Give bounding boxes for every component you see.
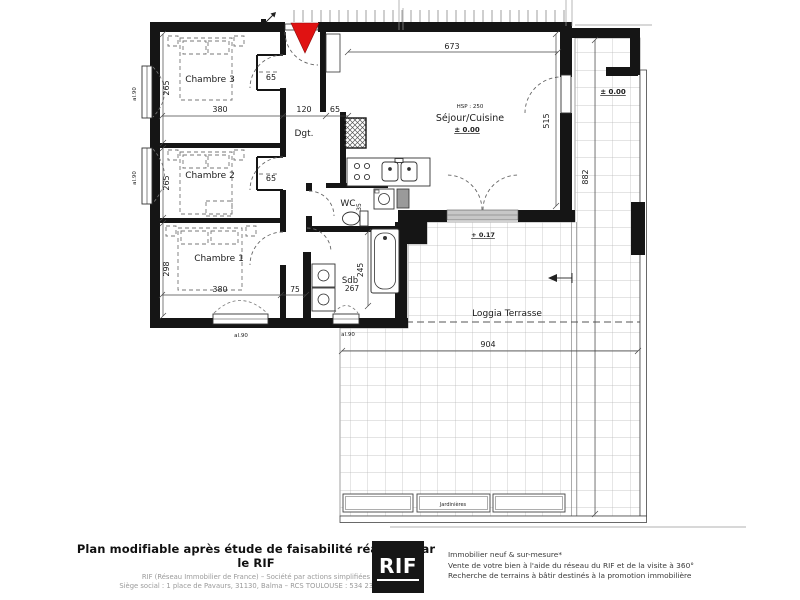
- footer: Plan modifiable après étude de faisabili…: [0, 538, 800, 600]
- room-label-chambre3: Chambre 3: [185, 75, 235, 85]
- dim-entry-width: 120: [296, 105, 311, 114]
- footer-services-block: Immobilier neuf & sur-mesure* Vente de v…: [448, 550, 778, 582]
- toilet-bowl: [343, 212, 360, 225]
- footer-service-line: Recherche de terrains à bâtir destinés à…: [448, 571, 778, 582]
- duct-shaft: [344, 118, 366, 148]
- dim-sdb-depth: 245: [356, 263, 365, 278]
- dim-sejour-width: 673: [444, 42, 459, 51]
- planter-label: Jardinières: [439, 501, 467, 508]
- dim-hall-width: 75: [290, 285, 300, 294]
- toilet-tank: [360, 211, 368, 226]
- footer-service-line: Vente de votre bien à l'aide du réseau d…: [448, 561, 778, 572]
- dim-wc-depth: 35: [356, 203, 363, 211]
- rif-logo-text: RIF: [377, 554, 419, 581]
- room-label-dgt: Dgt.: [294, 129, 313, 139]
- level-loggia: + 0.17: [471, 231, 495, 239]
- room-label-loggia: Loggia Terrasse: [472, 309, 542, 319]
- ruler-ticks: [294, 10, 564, 22]
- level-terrace: ± 0.00: [600, 88, 626, 96]
- floor-plan-canvas: Chambre 3 Chambre 2 Chambre 1 Dgt. WC Sd…: [0, 0, 800, 540]
- room-label-sejour: Séjour/Cuisine: [436, 113, 504, 124]
- room-label-wc: WC: [340, 199, 355, 209]
- terrace-railing-right: [640, 70, 647, 516]
- dim-entry-closet: 65: [330, 105, 340, 114]
- dim-ch1-depth: 298: [162, 261, 171, 276]
- washing-machine: [374, 189, 394, 209]
- rif-logo: RIF: [372, 541, 424, 593]
- washbasin-2: [312, 288, 335, 311]
- dim-ch2-depth: 265: [162, 175, 171, 190]
- entrance-marker: [291, 23, 319, 53]
- dim-ch3-width: 380: [212, 105, 227, 114]
- dim-ch2-closet: 65: [266, 174, 276, 183]
- water-heater: [397, 189, 409, 208]
- washbasin-1: [312, 264, 335, 287]
- kitchen-counter: [347, 158, 430, 186]
- room-label-chambre1: Chambre 1: [194, 254, 244, 264]
- footer-service-line: Immobilier neuf & sur-mesure*: [448, 550, 778, 561]
- level-sejour: ± 0.00: [454, 126, 480, 134]
- dim-sejour-depth: 515: [542, 113, 551, 128]
- dim-ch1-width: 380: [212, 285, 227, 294]
- dim-ch3-closet: 65: [266, 73, 276, 82]
- room-label-chambre2: Chambre 2: [185, 171, 235, 181]
- terrace-railing-bottom: [340, 516, 647, 523]
- dim-sdb-width: 267: [345, 284, 360, 293]
- sill-label-2: al.90: [132, 171, 138, 185]
- dim-terrace-width: 904: [480, 340, 495, 349]
- sill-label-3: al.90: [234, 333, 248, 339]
- dim-terrace-depth: 882: [581, 169, 590, 184]
- sill-label-1: al.90: [132, 87, 138, 101]
- floor-plan-page: Chambre 3 Chambre 2 Chambre 1 Dgt. WC Sd…: [0, 0, 800, 600]
- dim-ch3-depth: 265: [162, 80, 171, 95]
- sill-label-4: al.90: [341, 332, 355, 338]
- ceiling-height-label: HSP : 250: [457, 104, 484, 110]
- entry-cabinet: [326, 34, 340, 72]
